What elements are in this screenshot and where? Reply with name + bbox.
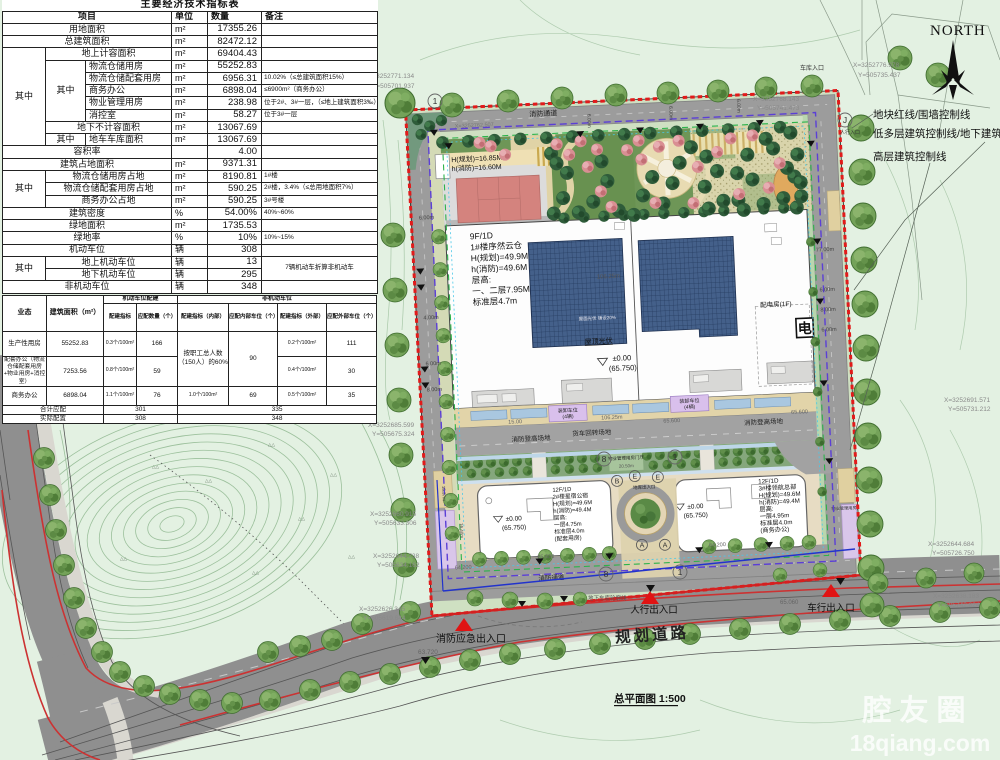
svg-text:±0.00: ±0.00 xyxy=(687,503,704,511)
svg-text:△△: △△ xyxy=(205,478,212,483)
svg-text:B: B xyxy=(615,478,620,485)
svg-text:腔友圈: 腔友圈 xyxy=(861,694,973,727)
svg-text:64.200: 64.200 xyxy=(709,542,726,549)
svg-text:NORTH: NORTH xyxy=(930,23,986,39)
svg-text:地块红线/围墙控制线: 地块红线/围墙控制线 xyxy=(873,108,971,121)
svg-text:A: A xyxy=(639,542,644,549)
svg-text:15.00: 15.00 xyxy=(508,419,522,426)
svg-text:Y=505735.437: Y=505735.437 xyxy=(858,72,901,79)
svg-text:6.00m: 6.00m xyxy=(821,327,837,334)
svg-text:(4辆): (4辆) xyxy=(684,403,696,411)
svg-text:64.200: 64.200 xyxy=(455,565,472,572)
svg-text:65.060: 65.060 xyxy=(780,600,799,606)
svg-text:Y=505675.324: Y=505675.324 xyxy=(372,431,415,438)
svg-text:±0.00: ±0.00 xyxy=(612,353,631,363)
svg-text:车行出入口: 车行出入口 xyxy=(807,602,855,614)
svg-text:6.00m: 6.00m xyxy=(819,287,835,294)
svg-text:X=3252691.571: X=3252691.571 xyxy=(944,397,990,404)
svg-text:消防应急出入口: 消防应急出入口 xyxy=(436,632,506,645)
svg-text:Y=505619.644: Y=505619.644 xyxy=(363,615,406,622)
svg-text:一层4.75m: 一层4.75m xyxy=(554,521,582,529)
svg-text:A: A xyxy=(663,542,668,549)
svg-text:Y=505634.162: Y=505634.162 xyxy=(377,562,420,569)
svg-text:J: J xyxy=(843,115,847,125)
svg-text:X=3252644.684: X=3252644.684 xyxy=(928,541,974,548)
svg-text:总平面图 1:500: 总平面图 1:500 xyxy=(614,692,686,705)
svg-text:6.00m: 6.00m xyxy=(667,106,674,120)
svg-text:△△: △△ xyxy=(348,554,355,559)
svg-text:1: 1 xyxy=(433,96,438,106)
svg-text:8.00m: 8.00m xyxy=(427,387,443,394)
svg-text:低多层建筑控制线/地下建筑控制线: 低多层建筑控制线/地下建筑控制线 xyxy=(873,127,1000,140)
svg-text:X=3252638.183: X=3252638.183 xyxy=(933,593,979,600)
svg-text:8.00m: 8.00m xyxy=(820,307,836,314)
svg-text:6.00m: 6.00m xyxy=(419,215,435,222)
svg-text:E: E xyxy=(655,474,660,481)
svg-text:±0.00: ±0.00 xyxy=(505,515,522,523)
svg-text:X=3252626.345: X=3252626.345 xyxy=(359,606,405,613)
svg-text:106.25m: 106.25m xyxy=(601,415,623,422)
svg-text:20.50m: 20.50m xyxy=(619,463,634,469)
svg-text:(65.750): (65.750) xyxy=(684,512,709,520)
svg-text:X=3252768.143: X=3252768.143 xyxy=(753,96,799,103)
svg-text:△△: △△ xyxy=(268,442,275,447)
svg-text:△△: △△ xyxy=(120,556,127,561)
svg-text:电: 电 xyxy=(797,320,812,337)
svg-text:(4辆): (4辆) xyxy=(562,413,574,421)
svg-text:Y=505742.824: Y=505742.824 xyxy=(937,602,980,609)
svg-text:E: E xyxy=(632,473,637,480)
svg-text:地下车库轮廓线: 地下车库轮廓线 xyxy=(588,594,627,602)
svg-text:18qiang.com: 18qiang.com xyxy=(850,730,991,756)
svg-text:9F/1D: 9F/1D xyxy=(470,230,494,241)
svg-text:X=3252660.915: X=3252660.915 xyxy=(370,511,416,518)
svg-text:高层建筑控制线: 高层建筑控制线 xyxy=(873,150,947,163)
svg-text:15.37m: 15.37m xyxy=(441,486,447,501)
svg-text:△△: △△ xyxy=(252,570,259,575)
svg-text:Y=505633.306: Y=505633.306 xyxy=(374,520,417,527)
svg-text:X=3252776.978: X=3252776.978 xyxy=(853,62,899,69)
svg-text:63.720: 63.720 xyxy=(418,649,438,656)
svg-text:Y=505741.473: Y=505741.473 xyxy=(757,105,800,112)
svg-text:Y=505701.937: Y=505701.937 xyxy=(372,83,415,90)
svg-text:16.40m: 16.40m xyxy=(459,523,465,538)
svg-text:4.00m: 4.00m xyxy=(423,315,439,322)
svg-text:(65.750): (65.750) xyxy=(502,524,527,532)
svg-text:106.25m: 106.25m xyxy=(597,274,621,281)
svg-text:车库入口: 车库入口 xyxy=(800,64,824,72)
svg-text:8: 8 xyxy=(604,569,609,579)
svg-text:人行出入口: 人行出入口 xyxy=(630,604,678,616)
svg-text:65.600: 65.600 xyxy=(663,418,680,425)
svg-text:1: 1 xyxy=(678,567,683,577)
svg-text:6.00m: 6.00m xyxy=(735,99,742,113)
svg-text:8: 8 xyxy=(602,454,607,464)
svg-text:(65.750): (65.750) xyxy=(609,363,638,373)
svg-text:标准层4.7m: 标准层4.7m xyxy=(473,295,518,307)
svg-text:65.600: 65.600 xyxy=(791,409,808,416)
svg-text:△△: △△ xyxy=(330,472,337,477)
svg-text:Y=505731.212: Y=505731.212 xyxy=(948,406,991,413)
svg-text:1: 1 xyxy=(673,452,678,462)
svg-text:12F/1D: 12F/1D xyxy=(552,487,571,494)
svg-text:Y=505726.750: Y=505726.750 xyxy=(932,550,975,557)
svg-text:6.00m: 6.00m xyxy=(585,114,592,128)
svg-text:△△: △△ xyxy=(152,464,159,469)
svg-text:△△: △△ xyxy=(298,516,305,521)
svg-text:(商务办公): (商务办公) xyxy=(760,525,789,534)
svg-text:77.00m: 77.00m xyxy=(816,247,835,254)
svg-text:人行入口: 人行入口 xyxy=(840,129,860,136)
svg-text:X=3252644.738: X=3252644.738 xyxy=(373,553,419,560)
svg-text:层高:: 层高: xyxy=(472,274,492,285)
